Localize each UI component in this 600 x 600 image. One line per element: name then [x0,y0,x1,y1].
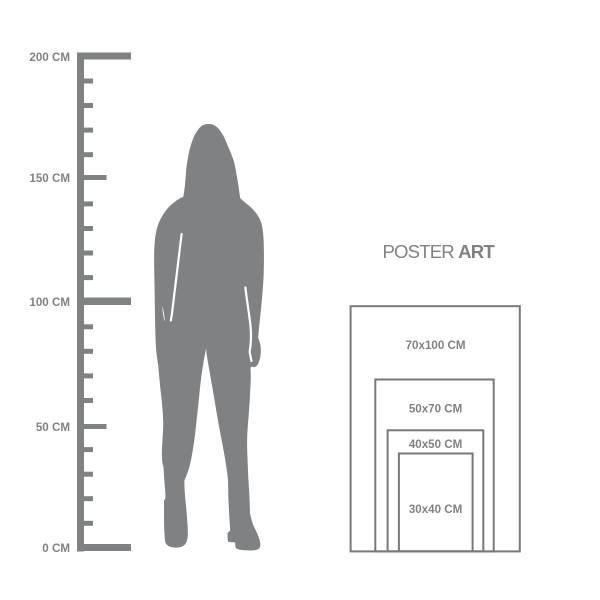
svg-text:70x100 CM: 70x100 CM [406,339,466,352]
svg-text:POSTER ART: POSTER ART [383,241,496,262]
svg-text:0 CM: 0 CM [42,542,70,555]
svg-text:50 CM: 50 CM [36,421,70,434]
svg-text:200 CM: 200 CM [29,51,70,64]
svg-text:100 CM: 100 CM [29,296,70,309]
svg-text:30x40 CM: 30x40 CM [409,503,463,516]
svg-text:50x70 CM: 50x70 CM [409,403,463,416]
svg-text:150 CM: 150 CM [29,172,70,185]
svg-text:40x50 CM: 40x50 CM [409,438,463,451]
